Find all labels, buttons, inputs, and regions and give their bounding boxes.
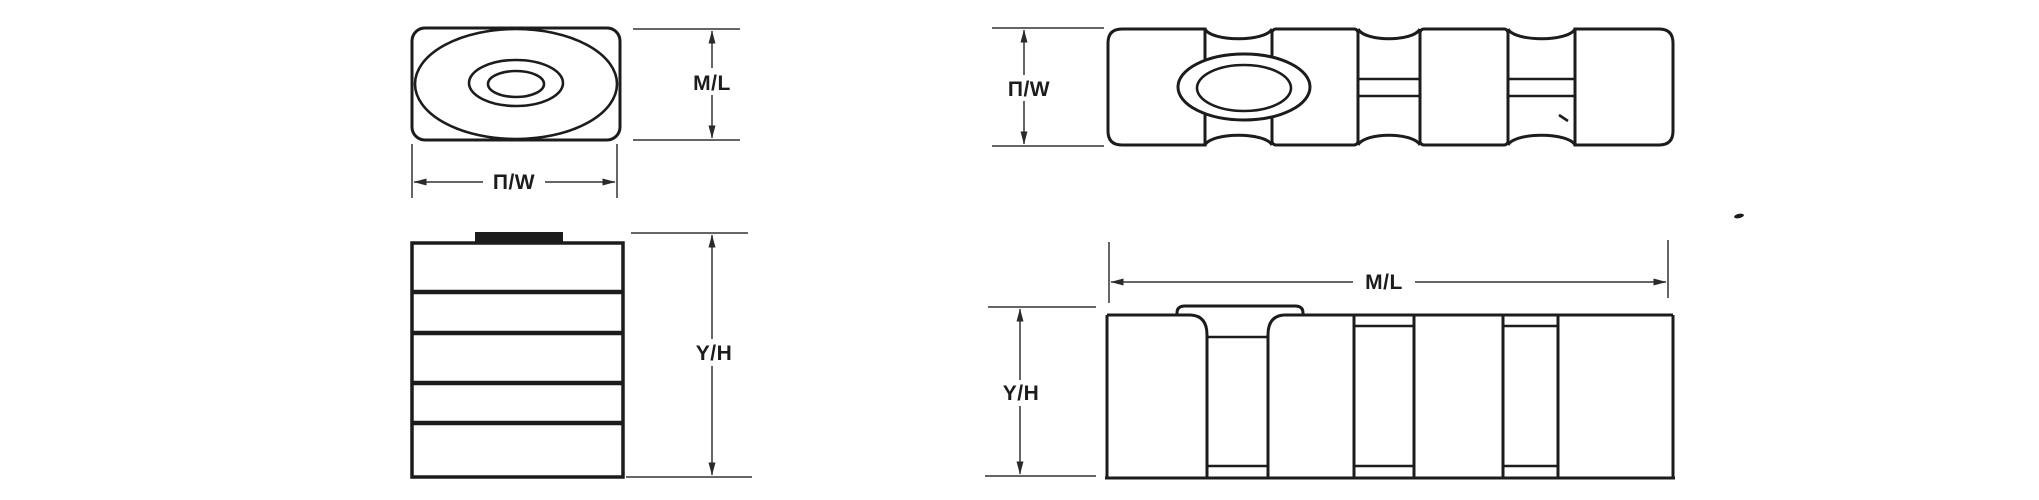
pot-core-rim-ellipse [415, 29, 617, 139]
stray-ink-mark [1559, 115, 1568, 121]
joint-1-right-wall [1268, 315, 1284, 478]
dimension-ml-bottom-right: M/L [1109, 240, 1668, 303]
dimension-ml-top-left: M/L [633, 29, 740, 140]
dimension-pw-top-left: П/W [412, 144, 617, 198]
joint-1-left-wall [1191, 315, 1207, 478]
dim-label-ml: M/L [693, 72, 731, 95]
neck-3-bottom-arc [1508, 135, 1575, 145]
pot-core-bore-outer-ellipse [469, 60, 563, 106]
neck-1-bottom-arc [1205, 135, 1272, 145]
neck-3-top-arc [1508, 29, 1575, 39]
dimension-yh-bottom-left: Y/H [626, 233, 752, 477]
stack-outline [412, 243, 623, 477]
view-top-left-pot-core [412, 28, 620, 140]
core-segment-3 [1420, 29, 1508, 145]
view-top-right-segmented-core [1108, 29, 1673, 145]
pot-core-bore-inner-ellipse [488, 71, 544, 97]
dim-label-yh: Y/H [696, 342, 733, 365]
neck-2-bottom-arc [1358, 135, 1420, 145]
technical-drawing-page: M/L П/W П/W [0, 0, 2039, 500]
stray-ink-mark [1734, 213, 1745, 219]
dim-label-pw: П/W [493, 171, 535, 194]
dimension-pw-top-right: П/W [992, 28, 1104, 146]
dim-label-yh: Y/H [1003, 382, 1040, 405]
dimension-yh-bottom-right: Y/H [985, 307, 1096, 476]
technical-drawing-canvas: M/L П/W П/W [0, 0, 2039, 500]
neck-1-top-arc [1205, 29, 1272, 39]
view-bottom-left-laminated-stack [412, 232, 623, 477]
neck-2-top-arc [1358, 29, 1420, 39]
dim-label-ml: M/L [1365, 271, 1403, 294]
core-segment-4 [1575, 29, 1673, 145]
dim-label-pw: П/W [1008, 78, 1050, 101]
view-bottom-right-sectioned-block [1105, 306, 1675, 478]
